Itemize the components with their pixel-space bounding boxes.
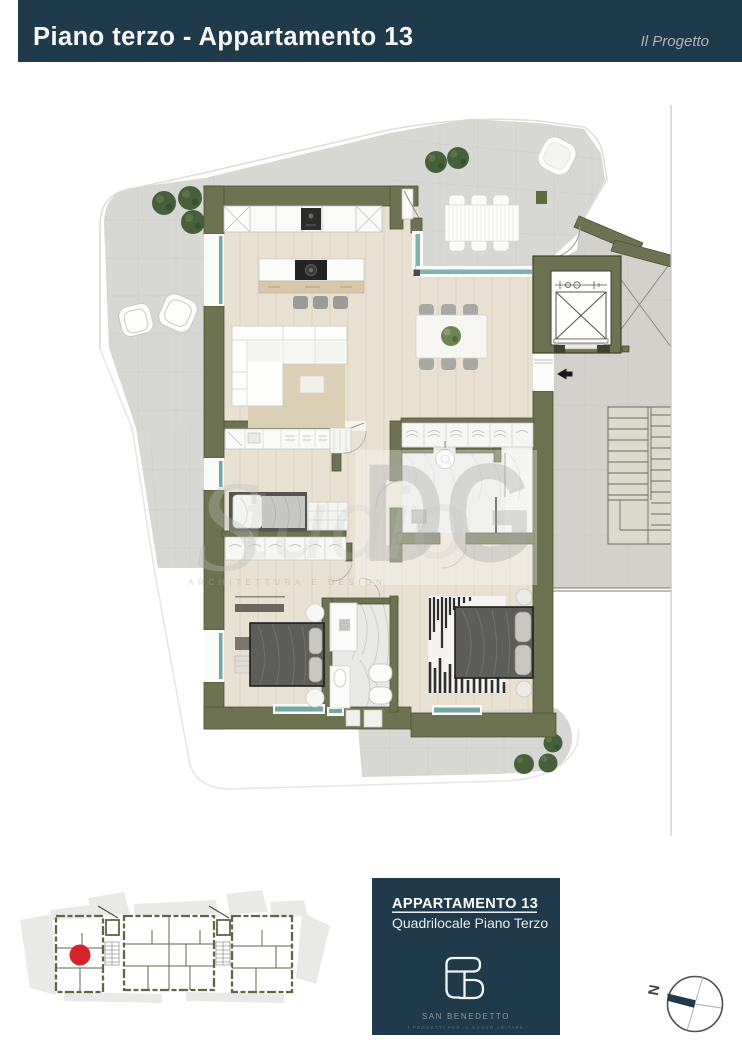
svg-text:ARCHITETTURA E DESIGN: ARCHITETTURA E DESIGN — [188, 578, 386, 587]
svg-text:I PROGETTI PER IL NUOVO ABITAR: I PROGETTI PER IL NUOVO ABITARE — [408, 1025, 524, 1030]
svg-text:tudio: tudio — [242, 468, 469, 580]
svg-text:SAN BENEDETTO: SAN BENEDETTO — [422, 1012, 510, 1021]
svg-text:APPARTAMENTO 13: APPARTAMENTO 13 — [392, 896, 538, 912]
svg-text:Quadrilocale Piano Terzo: Quadrilocale Piano Terzo — [392, 915, 548, 931]
svg-text:Piano terzo - Appartamento 13: Piano terzo - Appartamento 13 — [33, 23, 414, 51]
svg-text:Il Progetto: Il Progetto — [641, 33, 709, 50]
